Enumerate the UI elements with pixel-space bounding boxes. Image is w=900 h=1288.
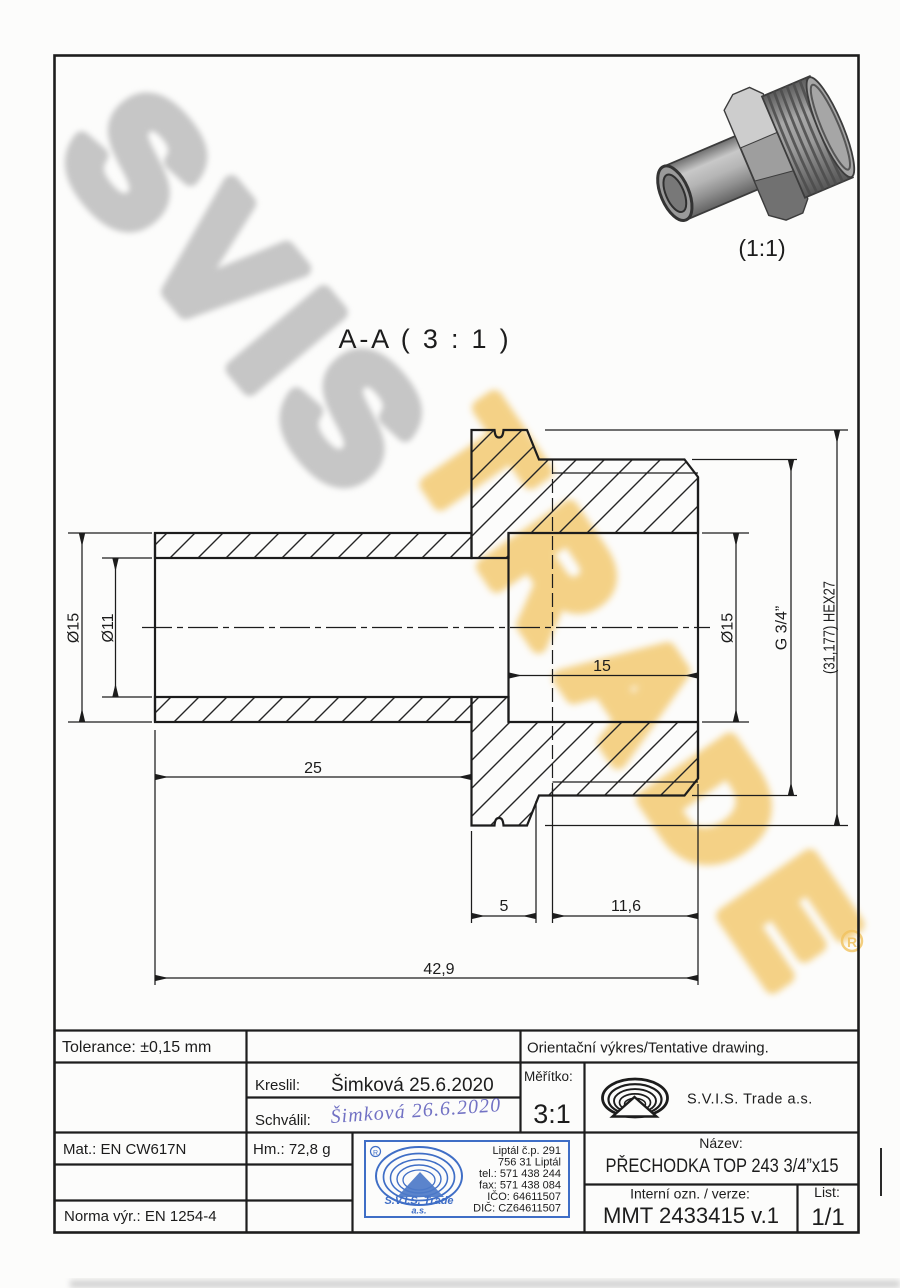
svg-text:Tolerance: ±0,15 mm: Tolerance: ±0,15 mm bbox=[62, 1039, 211, 1056]
svg-text:G 3/4”: G 3/4” bbox=[774, 606, 791, 650]
svg-text:tel.: 571 438 244: tel.: 571 438 244 bbox=[479, 1168, 561, 1180]
svg-text:Interní ozn. / verze:: Interní ozn. / verze: bbox=[630, 1186, 750, 1202]
svg-text:42,9: 42,9 bbox=[423, 961, 454, 978]
svg-text:Schválil:: Schválil: bbox=[255, 1112, 311, 1129]
svg-text:Liptál č.p. 291: Liptál č.p. 291 bbox=[493, 1145, 562, 1157]
svg-text:S.V.I.S. Trade a.s.: S.V.I.S. Trade a.s. bbox=[687, 1092, 813, 1108]
svg-text:IČO: 64611507: IČO: 64611507 bbox=[487, 1190, 561, 1203]
svg-text:a.s.: a.s. bbox=[411, 1206, 426, 1216]
svg-text:5: 5 bbox=[500, 898, 509, 915]
svg-text:25: 25 bbox=[304, 760, 322, 777]
svg-text:Ø11: Ø11 bbox=[100, 613, 117, 642]
svg-text:A-A ( 3 : 1 ): A-A ( 3 : 1 ) bbox=[339, 324, 512, 354]
svg-text:Kreslil:: Kreslil: bbox=[255, 1077, 300, 1094]
svg-text:Mat.: EN CW617N: Mat.: EN CW617N bbox=[63, 1141, 186, 1158]
svg-text:Ø15: Ø15 bbox=[66, 613, 83, 643]
svg-text:Hm.: 72,8 g: Hm.: 72,8 g bbox=[253, 1141, 331, 1158]
svg-text:R: R bbox=[847, 934, 857, 950]
svg-text:List:: List: bbox=[814, 1184, 840, 1200]
svg-text:Norma výr.: EN 1254-4: Norma výr.: EN 1254-4 bbox=[64, 1208, 217, 1225]
svg-text:fax: 571 438 084: fax: 571 438 084 bbox=[479, 1180, 561, 1192]
svg-text:(31,177) HEX27: (31,177) HEX27 bbox=[822, 581, 839, 674]
svg-text:DIČ: CZ64611507: DIČ: CZ64611507 bbox=[473, 1202, 561, 1215]
svg-text:(1:1): (1:1) bbox=[738, 235, 785, 261]
svg-text:PŘECHODKA TOP 243 3/4”x15: PŘECHODKA TOP 243 3/4”x15 bbox=[606, 1155, 839, 1177]
svg-text:Ø15: Ø15 bbox=[720, 613, 737, 643]
svg-text:1/1: 1/1 bbox=[811, 1204, 844, 1231]
svg-text:R: R bbox=[373, 1150, 378, 1157]
svg-text:MMT 2433415 v.1: MMT 2433415 v.1 bbox=[603, 1203, 779, 1228]
svg-text:Orientační výkres/Tentative dr: Orientační výkres/Tentative drawing. bbox=[527, 1040, 769, 1057]
svg-text:Název:: Název: bbox=[699, 1135, 743, 1151]
svg-text:756 31 Liptál: 756 31 Liptál bbox=[498, 1157, 561, 1169]
svg-text:Měřítko:: Měřítko: bbox=[524, 1069, 573, 1084]
svg-text:3:1: 3:1 bbox=[533, 1099, 571, 1129]
svg-text:Šimková 25.6.2020: Šimková 25.6.2020 bbox=[331, 1074, 494, 1096]
svg-text:11,6: 11,6 bbox=[611, 898, 641, 915]
svg-text:15: 15 bbox=[593, 658, 611, 675]
